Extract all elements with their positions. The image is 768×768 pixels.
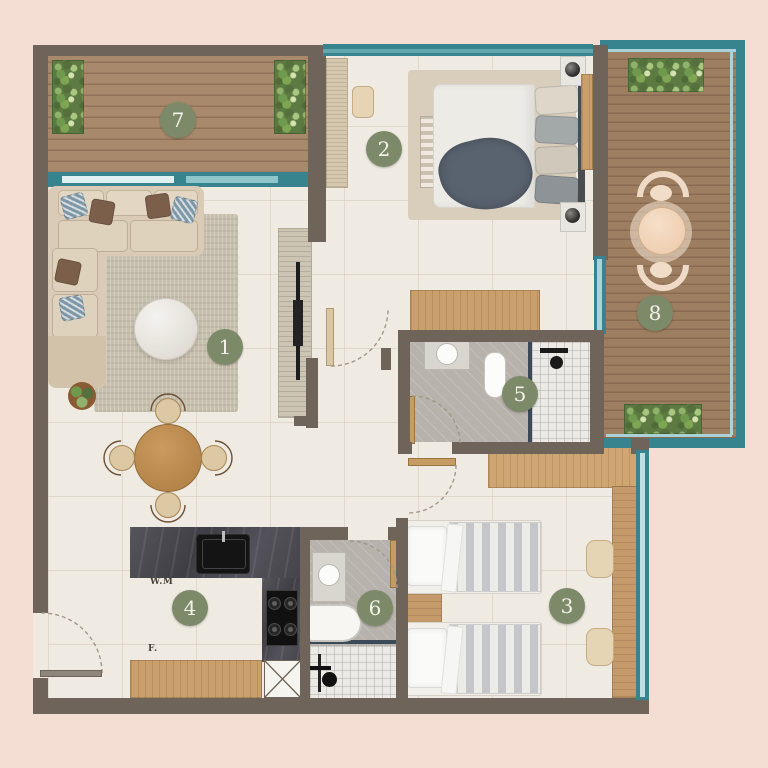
- room-badge-4-kitchen: 4: [172, 590, 208, 626]
- potted-plant: [68, 382, 96, 410]
- floor-plan: W.M F.: [0, 0, 768, 768]
- bathtub: [308, 604, 362, 642]
- throw-pillow: [58, 294, 86, 322]
- bed-duvet-striped: [449, 522, 541, 592]
- window-glass: [186, 176, 278, 183]
- desk-chair: [586, 540, 614, 578]
- wall: [33, 45, 323, 56]
- dining-chair: [155, 492, 181, 518]
- bed-duvet-striped: [449, 624, 541, 694]
- balcony-chair-seat: [650, 185, 672, 201]
- hall-bench: [352, 86, 374, 118]
- throw-pillow: [144, 192, 171, 219]
- balcony-glass-railing: [600, 438, 745, 448]
- balcony-chair-seat: [650, 262, 672, 278]
- window-glass: [62, 176, 174, 183]
- room-badge-5-bathroom: 5: [502, 376, 538, 412]
- wardrobe: [488, 452, 640, 488]
- planter-plants: [274, 60, 306, 134]
- door-leaf: [408, 458, 456, 466]
- wall: [308, 45, 326, 242]
- bed-pillow: [534, 84, 580, 115]
- wall: [452, 442, 600, 454]
- washing-machine-label: W.M: [150, 577, 173, 587]
- nightstand: [404, 592, 442, 624]
- wall: [593, 45, 608, 260]
- hall-console: [326, 58, 348, 188]
- bed-pillow: [534, 145, 579, 175]
- wall: [294, 416, 316, 426]
- desk-chair: [586, 628, 614, 666]
- room-badge-6-bathroom: 6: [357, 590, 393, 626]
- cooktop-burner: [268, 597, 281, 610]
- wall: [33, 45, 48, 613]
- wall: [398, 330, 600, 342]
- bed-pillow: [534, 115, 579, 145]
- wardrobe: [410, 290, 540, 332]
- fridge-label: F.: [148, 644, 158, 654]
- wall: [300, 527, 348, 540]
- throw-pillow: [54, 258, 82, 286]
- entrance-door-leaf: [40, 670, 102, 677]
- entrance-threshold: [33, 613, 48, 678]
- room-badge-3-bedroom: 3: [549, 588, 585, 624]
- dining-table: [134, 424, 202, 492]
- railing-inner-line: [730, 52, 733, 435]
- shower-area: [310, 646, 396, 698]
- wall: [396, 518, 408, 714]
- kitchen-faucet: [222, 531, 225, 542]
- door-leaf: [326, 308, 334, 366]
- bed-pillow: [534, 174, 580, 205]
- dining-chair: [201, 445, 227, 471]
- shower-head: [309, 666, 331, 670]
- planter-plants: [52, 60, 84, 134]
- room-badge-2-hall: 2: [366, 131, 402, 167]
- railing-inner-line: [606, 49, 736, 52]
- cooktop-burner: [284, 623, 297, 636]
- wardrobe: [581, 74, 593, 170]
- tv: [293, 300, 303, 346]
- window-glass: [640, 453, 645, 697]
- wall: [300, 527, 310, 714]
- wall: [33, 698, 649, 714]
- shower-head: [322, 672, 337, 687]
- table-lamp: [565, 208, 580, 223]
- dining-chair: [109, 445, 135, 471]
- sofa-cushion: [130, 220, 198, 252]
- kitchen-sink-rim: [202, 539, 246, 569]
- planter-plants: [628, 58, 704, 92]
- coffee-table: [134, 298, 198, 360]
- fridge-space: [264, 660, 301, 698]
- dining-chair: [155, 398, 181, 424]
- balcony-glass-railing: [600, 40, 745, 49]
- shower-head: [550, 356, 563, 369]
- kitchen-cabinet: [130, 660, 262, 698]
- room-badge-7-balcony: 7: [160, 102, 196, 138]
- planter-plants: [624, 404, 702, 434]
- wall: [381, 348, 391, 370]
- cooktop-burner: [268, 623, 281, 636]
- balcony-table: [638, 207, 686, 255]
- wall: [398, 330, 410, 454]
- bathroom-sink: [318, 564, 340, 586]
- desk: [612, 486, 638, 698]
- table-lamp: [565, 62, 580, 77]
- window-glass: [597, 259, 602, 331]
- shower-head: [540, 348, 568, 353]
- bathroom-sink: [436, 343, 458, 365]
- throw-pillow: [88, 198, 116, 226]
- wall: [398, 442, 412, 454]
- room-badge-8-balcony: 8: [637, 295, 673, 331]
- railing-inner-line: [606, 434, 732, 437]
- sofa-armrest: [48, 336, 106, 388]
- shower-head: [318, 654, 321, 692]
- room-badge-1-living: 1: [207, 329, 243, 365]
- window-glass: [323, 49, 593, 53]
- balcony-glass-railing: [736, 40, 745, 448]
- cooktop-burner: [284, 597, 297, 610]
- wall: [590, 330, 604, 454]
